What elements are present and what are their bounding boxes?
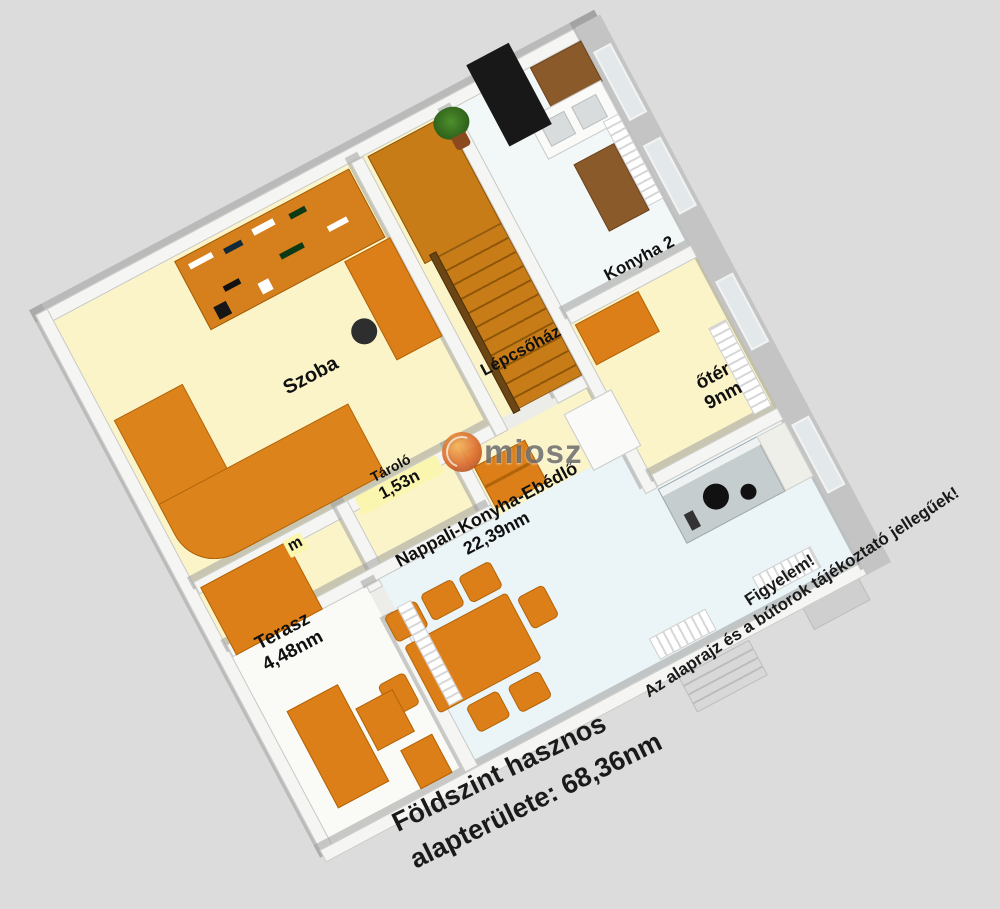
watermark-text: miosz — [484, 433, 583, 471]
watermark: miosz — [442, 432, 583, 472]
globe-icon — [442, 432, 482, 472]
floorplan-canvas: Szoba Lépcsőház Konyha 2 őtér 9nm Nappal… — [0, 0, 1000, 909]
